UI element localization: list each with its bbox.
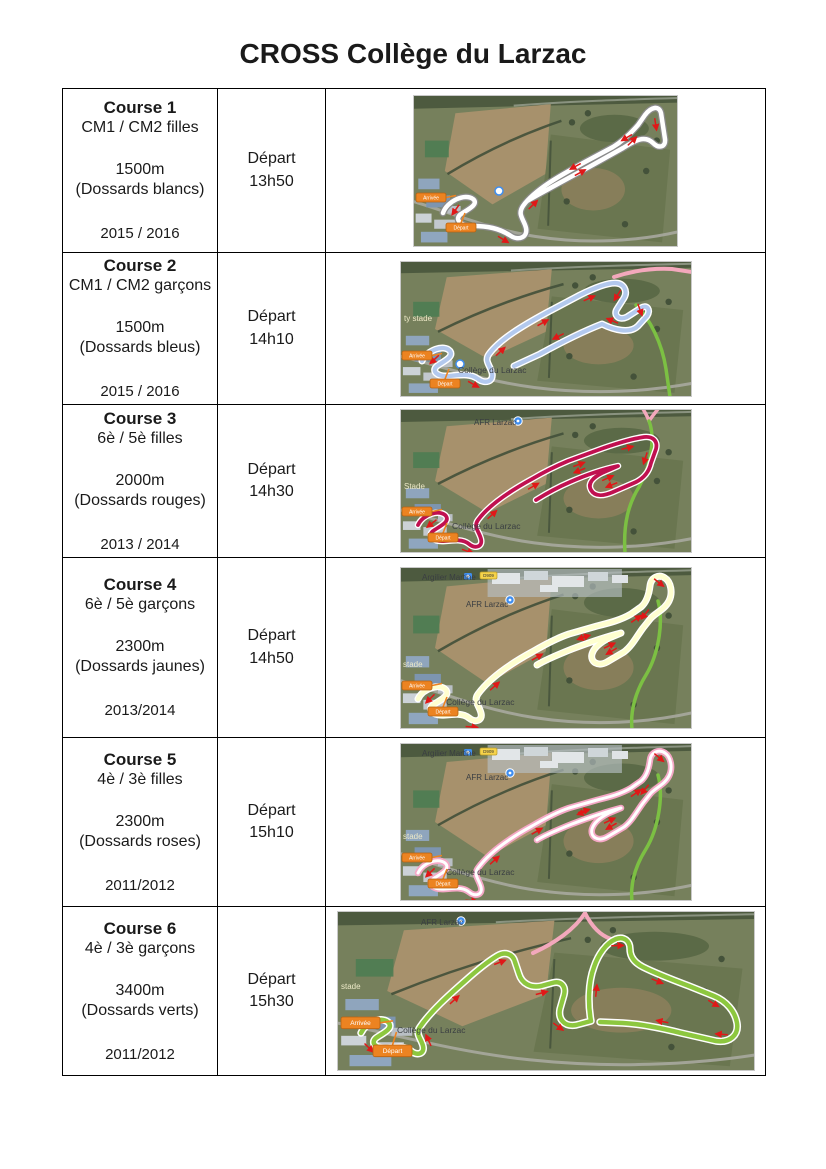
- svg-text:Départ: Départ: [435, 881, 451, 887]
- map-image: AFR LarzacstadeCollège du LarzacArrivéeD…: [326, 911, 765, 1071]
- course-info-cell: Course 1CM1 / CM2 filles1500m(Dossards b…: [63, 89, 218, 253]
- depart-cell: Départ14h30: [218, 405, 326, 558]
- map-place-label: AFR Larzac: [466, 773, 508, 782]
- course-years: 2013/2014: [63, 702, 217, 721]
- map-cell: D909Argilier MartineAFR LarzacstadeCollè…: [326, 558, 766, 738]
- map-place-label: stade: [341, 982, 361, 991]
- svg-text:Départ: Départ: [435, 709, 451, 715]
- depart-label: Départ: [218, 459, 325, 481]
- map-place-label: Argilier Martine: [422, 749, 476, 758]
- course-info-cell: Course 46è / 5è garçons2300m(Dossards ja…: [63, 558, 218, 738]
- course-map: D909Argilier MartineAFR LarzacstadeCollè…: [400, 743, 692, 901]
- map-place-label: Collège du Larzac: [397, 1025, 466, 1035]
- course-category: 4è / 3è garçons: [63, 939, 217, 959]
- map-place-label: AFR Larzac: [474, 418, 516, 427]
- course-years: 2013 / 2014: [63, 536, 217, 555]
- map-image: AFR LarzacStadeCollège du LarzacArrivéeD…: [326, 409, 765, 553]
- course-title: Course 1: [63, 97, 217, 118]
- course-map: ArrivéeDépart: [413, 95, 678, 247]
- table-row: Course 1CM1 / CM2 filles1500m(Dossards b…: [63, 89, 766, 253]
- course-title: Course 6: [63, 918, 217, 939]
- course-distance: 1500m: [63, 318, 217, 338]
- table-row: Course 54è / 3è filles2300m(Dossards ros…: [63, 738, 766, 907]
- course-title: Course 2: [63, 255, 217, 276]
- course-table-body: Course 1CM1 / CM2 filles1500m(Dossards b…: [63, 89, 766, 1076]
- svg-text:D909: D909: [483, 573, 494, 578]
- map-image: D909Argilier MartineAFR LarzacstadeCollè…: [326, 743, 765, 901]
- map-place-label: Collège du Larzac: [446, 867, 515, 877]
- map-place-label: stade: [403, 832, 423, 841]
- course-distance: 1500m: [63, 160, 217, 180]
- course-info-cell: Course 54è / 3è filles2300m(Dossards ros…: [63, 738, 218, 907]
- svg-text:Départ: Départ: [382, 1048, 402, 1055]
- map-cell: AFR LarzacStadeCollège du LarzacArrivéeD…: [326, 405, 766, 558]
- map-place-label: Collège du Larzac: [458, 365, 527, 375]
- depart-time: 15h10: [218, 822, 325, 844]
- course-category: CM1 / CM2 garçons: [63, 276, 217, 296]
- depart-cell: Départ14h50: [218, 558, 326, 738]
- course-category: 6è / 5è filles: [63, 429, 217, 449]
- map-place-label: Collège du Larzac: [446, 697, 515, 707]
- course-bib: (Dossards blancs): [63, 180, 217, 201]
- map-image: ArrivéeDépart: [326, 95, 765, 247]
- road-number-badge: D909: [480, 748, 497, 755]
- course-distance: 2300m: [63, 637, 217, 657]
- course-table: Course 1CM1 / CM2 filles1500m(Dossards b…: [62, 88, 766, 1076]
- depart-time: 14h50: [218, 648, 325, 670]
- direction-arrow-icon: [465, 726, 477, 727]
- depart-time: 13h50: [218, 171, 325, 193]
- course-title: Course 5: [63, 749, 217, 770]
- course-distance: 3400m: [63, 981, 217, 1001]
- table-row: Course 64è / 3è garçons3400m(Dossards ve…: [63, 907, 766, 1076]
- svg-text:Arrivée: Arrivée: [409, 683, 425, 689]
- document-page: CROSS Collège du Larzac Course 1CM1 / CM…: [0, 0, 826, 1169]
- svg-text:Départ: Départ: [437, 381, 453, 387]
- table-row: Course 46è / 5è garçons2300m(Dossards ja…: [63, 558, 766, 738]
- course-title: Course 3: [63, 408, 217, 429]
- course-info-cell: Course 2CM1 / CM2 garçons1500m(Dossards …: [63, 253, 218, 405]
- depart-time: 14h30: [218, 481, 325, 503]
- svg-text:Arrivée: Arrivée: [409, 855, 425, 861]
- svg-text:Arrivée: Arrivée: [423, 195, 439, 201]
- svg-text:Départ: Départ: [435, 535, 451, 541]
- course-bib: (Dossards verts): [63, 1001, 217, 1022]
- course-bib: (Dossards jaunes): [63, 657, 217, 678]
- map-place-label: Argilier Martine: [422, 573, 476, 582]
- course-map: D909Argilier MartineAFR LarzacstadeCollè…: [400, 567, 692, 729]
- map-place-label: stade: [403, 660, 423, 669]
- course-bib: (Dossards rouges): [63, 491, 217, 512]
- svg-text:Départ: Départ: [453, 225, 469, 231]
- depart-cell: Départ14h10: [218, 253, 326, 405]
- course-info-cell: Course 64è / 3è garçons3400m(Dossards ve…: [63, 907, 218, 1076]
- svg-text:Arrivée: Arrivée: [350, 1020, 371, 1027]
- svg-text:D909: D909: [483, 749, 494, 754]
- map-place-label: Stade: [404, 482, 425, 491]
- map-cell: ty stadeCollège du LarzacArrivéeDépart: [326, 253, 766, 405]
- map-cell: AFR LarzacstadeCollège du LarzacArrivéeD…: [326, 907, 766, 1076]
- course-years: 2015 / 2016: [63, 383, 217, 402]
- svg-text:Arrivée: Arrivée: [409, 509, 425, 515]
- map-image: ty stadeCollège du LarzacArrivéeDépart: [326, 261, 765, 397]
- course-map: AFR LarzacstadeCollège du LarzacArrivéeD…: [337, 911, 755, 1071]
- course-map: AFR LarzacStadeCollège du LarzacArrivéeD…: [400, 409, 692, 553]
- depart-time: 14h10: [218, 329, 325, 351]
- page-title: CROSS Collège du Larzac: [0, 38, 826, 70]
- course-bib: (Dossards bleus): [63, 338, 217, 359]
- svg-text:Arrivée: Arrivée: [409, 353, 425, 359]
- course-info-cell: Course 36è / 5è filles2000m(Dossards rou…: [63, 405, 218, 558]
- map-place-label: ty stade: [404, 314, 433, 323]
- direction-arrow-icon: [715, 1034, 727, 1035]
- course-title: Course 4: [63, 574, 217, 595]
- depart-cell: Départ15h30: [218, 907, 326, 1076]
- course-map: ty stadeCollège du LarzacArrivéeDépart: [400, 261, 692, 397]
- road-number-badge: D909: [480, 572, 497, 579]
- course-distance: 2000m: [63, 471, 217, 491]
- table-row: Course 2CM1 / CM2 garçons1500m(Dossards …: [63, 253, 766, 405]
- roundabout-icon: [495, 187, 503, 195]
- map-place-label: Collège du Larzac: [452, 521, 521, 531]
- map-place-label: AFR Larzac: [466, 600, 508, 609]
- depart-label: Départ: [218, 148, 325, 170]
- course-bib: (Dossards roses): [63, 832, 217, 853]
- course-category: 6è / 5è garçons: [63, 595, 217, 615]
- course-category: 4è / 3è filles: [63, 770, 217, 790]
- course-distance: 2300m: [63, 812, 217, 832]
- depart-cell: Départ13h50: [218, 89, 326, 253]
- table-row: Course 36è / 5è filles2000m(Dossards rou…: [63, 405, 766, 558]
- depart-label: Départ: [218, 306, 325, 328]
- depart-label: Départ: [218, 800, 325, 822]
- map-image: D909Argilier MartineAFR LarzacstadeCollè…: [326, 567, 765, 729]
- map-cell: ArrivéeDépart: [326, 89, 766, 253]
- course-category: CM1 / CM2 filles: [63, 118, 217, 138]
- depart-label: Départ: [218, 969, 325, 991]
- depart-time: 15h30: [218, 991, 325, 1013]
- depart-label: Départ: [218, 625, 325, 647]
- map-place-label: AFR Larzac: [421, 918, 463, 927]
- course-years: 2011/2012: [63, 877, 217, 896]
- course-years: 2015 / 2016: [63, 225, 217, 244]
- map-cell: D909Argilier MartineAFR LarzacstadeCollè…: [326, 738, 766, 907]
- depart-cell: Départ15h10: [218, 738, 326, 907]
- course-years: 2011/2012: [63, 1046, 217, 1065]
